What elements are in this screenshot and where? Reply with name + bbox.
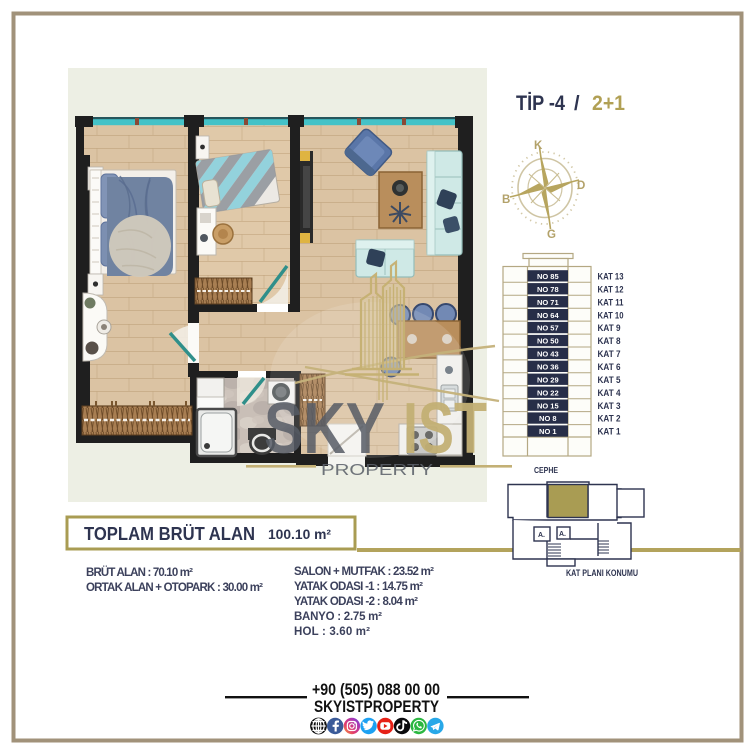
svg-text:SALON + MUTFAK : 23.52 m²: SALON + MUTFAK : 23.52 m² (294, 566, 434, 578)
svg-text:KAT 12: KAT 12 (598, 284, 624, 294)
svg-text:G: G (547, 229, 556, 241)
svg-text:NO 78: NO 78 (537, 285, 559, 294)
svg-text:TİP -4: TİP -4 (516, 92, 565, 115)
svg-text:/: / (574, 93, 580, 115)
svg-text:2+1: 2+1 (592, 92, 625, 115)
svg-text:BANYO : 2.75 m²: BANYO : 2.75 m² (294, 611, 382, 623)
svg-text:KAT 10: KAT 10 (598, 310, 624, 320)
svg-text:KAT PLANI KONUMU: KAT PLANI KONUMU (566, 568, 638, 578)
svg-text:IST: IST (403, 389, 487, 469)
svg-text:SKY: SKY (264, 389, 385, 469)
svg-text:ORTAK ALAN + OTOPARK : 30.00 m: ORTAK ALAN + OTOPARK : 30.00 m² (86, 582, 263, 594)
svg-text:KAT 9: KAT 9 (598, 323, 621, 333)
svg-text:BRÜT ALAN : 70.10 m²: BRÜT ALAN : 70.10 m² (86, 566, 193, 579)
svg-text:KAT 5: KAT 5 (598, 375, 621, 385)
svg-text:NO 8: NO 8 (539, 414, 557, 423)
svg-text:NO 50: NO 50 (537, 337, 559, 346)
svg-text:A.: A. (559, 531, 566, 538)
svg-text:NO 64: NO 64 (537, 311, 560, 320)
svg-text:NO 36: NO 36 (537, 363, 559, 372)
svg-text:TOPLAM BRÜT ALAN: TOPLAM BRÜT ALAN (84, 524, 255, 544)
svg-text:NO 15: NO 15 (537, 401, 559, 410)
svg-text:NO 71: NO 71 (537, 298, 559, 307)
svg-text:A.: A. (538, 532, 545, 539)
svg-text:KAT 1: KAT 1 (598, 427, 621, 437)
svg-text:PROPERTY: PROPERTY (321, 462, 433, 479)
svg-text:D: D (577, 180, 585, 192)
svg-text:NO 43: NO 43 (537, 350, 559, 359)
svg-text:KAT 8: KAT 8 (598, 336, 621, 346)
svg-text:NO 57: NO 57 (537, 324, 559, 333)
svg-text:NO 22: NO 22 (537, 388, 559, 397)
svg-text:KAT 11: KAT 11 (598, 297, 624, 307)
svg-text:NO 29: NO 29 (537, 375, 559, 384)
svg-text:KAT 6: KAT 6 (598, 362, 621, 372)
svg-text:B: B (502, 194, 510, 206)
svg-text:NO 85: NO 85 (537, 272, 559, 281)
svg-text:KAT 4: KAT 4 (598, 388, 621, 398)
svg-text:HOL : 3.60 m²: HOL : 3.60 m² (294, 626, 370, 638)
svg-text:KAT 3: KAT 3 (598, 401, 621, 411)
svg-text:NO 1: NO 1 (539, 427, 557, 436)
svg-text:CEPHE: CEPHE (534, 465, 558, 475)
svg-text:K: K (534, 140, 543, 152)
svg-text:100.10 m²: 100.10 m² (268, 526, 331, 542)
svg-text:YATAK ODASI -1 : 14.75 m²: YATAK ODASI -1 : 14.75 m² (294, 581, 423, 593)
svg-text:YATAK ODASI -2 : 8.04 m²: YATAK ODASI -2 : 8.04 m² (294, 596, 418, 608)
svg-text:SKYISTPROPERTY: SKYISTPROPERTY (314, 697, 440, 716)
svg-text:KAT 13: KAT 13 (598, 272, 624, 282)
svg-text:KAT 7: KAT 7 (598, 349, 621, 359)
svg-text:KAT 2: KAT 2 (598, 414, 621, 424)
